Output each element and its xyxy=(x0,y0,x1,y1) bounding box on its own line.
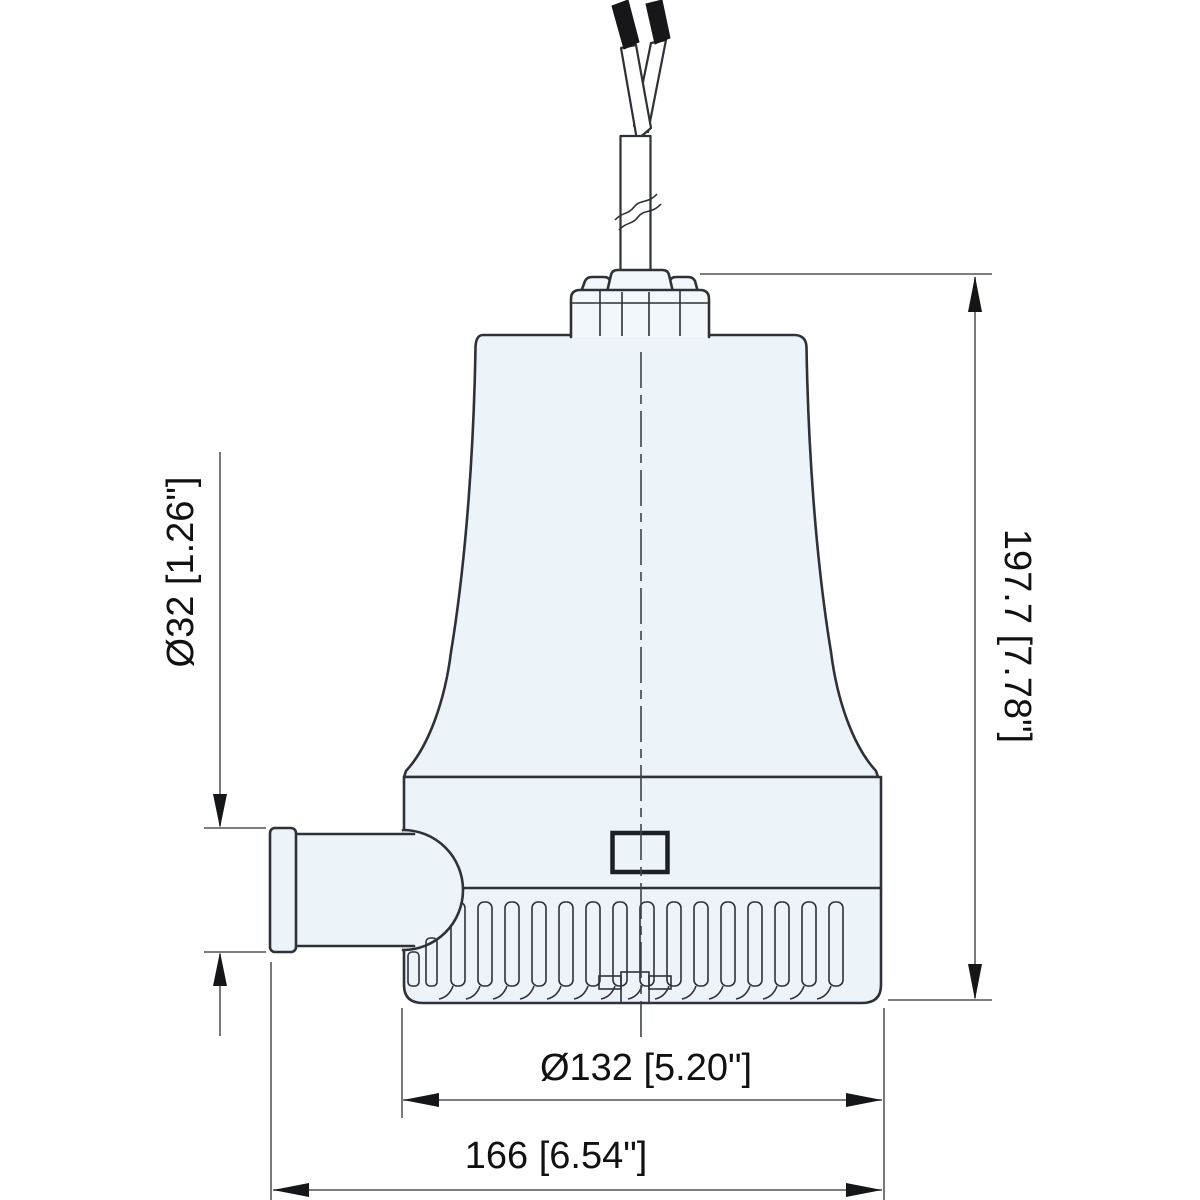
arrowhead-down xyxy=(968,964,982,1000)
arrowhead-right xyxy=(846,1093,882,1107)
gland-cap-body xyxy=(571,290,709,337)
wire-tip-left xyxy=(612,0,639,49)
lower-housing-outline xyxy=(404,777,881,1003)
outlet-diameter-label: Ø32 [1.26"] xyxy=(160,477,202,668)
overall-height-label: 197.7 [7.78"] xyxy=(996,529,1038,743)
strainer-diameter-label: Ø132 [5.20"] xyxy=(540,1047,752,1089)
arrowhead-left xyxy=(403,1093,439,1107)
overall-width-label: 166 [6.54"] xyxy=(465,1135,648,1177)
arrowhead-up xyxy=(968,276,982,312)
cable-gland-cap xyxy=(571,270,709,337)
technical-drawing-canvas: 197.7 [7.78"] Ø32 [1.26"] Ø132 [5.20"] 1… xyxy=(0,0,1200,1200)
pump-drawing-svg: 197.7 [7.78"] Ø32 [1.26"] Ø132 [5.20"] 1… xyxy=(0,0,1200,1200)
arrowhead-up xyxy=(213,952,227,986)
strainer-base xyxy=(404,777,881,1003)
outlet-hose-lip xyxy=(270,828,296,952)
dimension-outlet-diameter: Ø32 [1.26"] xyxy=(160,452,266,1036)
outlet-pipe-bore xyxy=(294,834,416,946)
impeller-window xyxy=(613,833,668,872)
arrowhead-down xyxy=(213,794,227,828)
arrowhead-left xyxy=(273,1183,309,1197)
power-cable xyxy=(612,0,670,276)
wire-tip-right xyxy=(646,0,670,44)
arrowhead-right xyxy=(846,1183,882,1197)
